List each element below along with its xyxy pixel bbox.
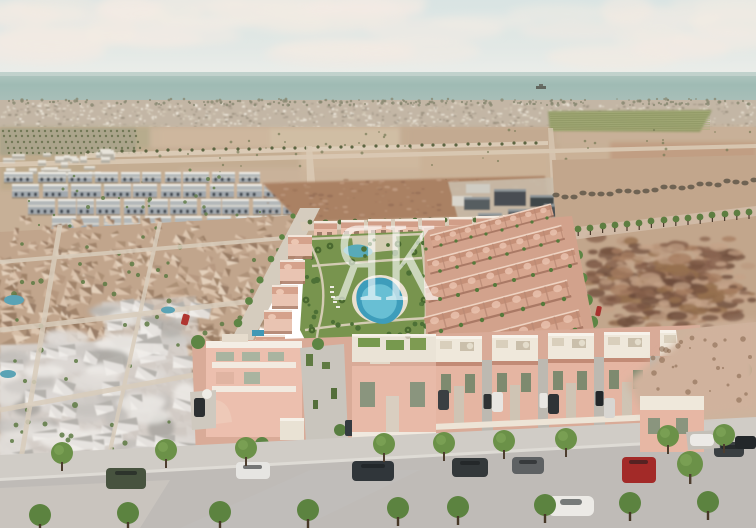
svg-text:ЯK: ЯK [333, 200, 439, 325]
